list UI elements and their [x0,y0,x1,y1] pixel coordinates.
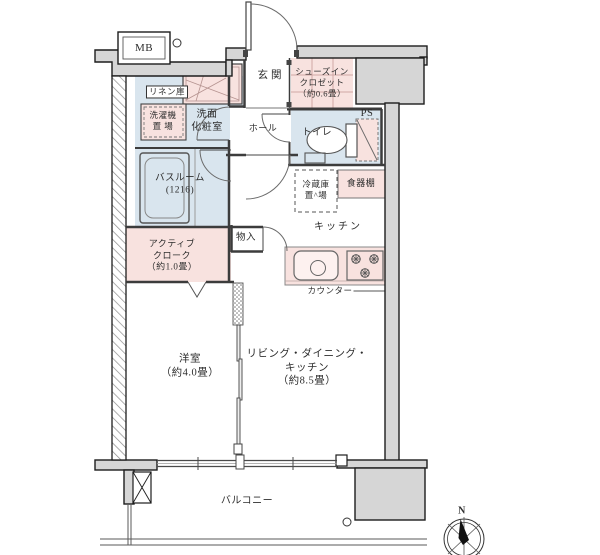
label-washer-space: 洗濯機 置 場 [149,110,176,132]
label-vanity-room: 洗面 化粧室 [191,108,223,134]
label-toilet: トイレ [302,127,332,139]
wall-right-column [385,103,399,461]
label-shoe-closet: シューズイン クロゼット （約0.6畳） [295,66,349,99]
label-bathroom: バスルーム (1216) [155,173,205,198]
wall-left-hatched [112,76,126,460]
door-hinge-mark-closet-bottom [287,102,292,107]
label-linen-closet: リネン庫 [146,85,188,98]
wall-top-right [297,46,427,58]
label-counter: カウンター [306,285,353,296]
label-active-cloak: アクティブ クローク （約1.0畳） [147,238,198,273]
door-hinge-mark-closet-top [287,60,292,65]
door-storage [263,227,287,251]
kitchen-counter [285,247,389,291]
label-pipe-space: PS [361,107,374,121]
floor-plan-page: MB PS 玄関 ホール シューズイン クロゼット （約0.6畳） トイレ リネ… [0,0,600,555]
label-storage: 物入 [236,232,256,244]
front-door [243,2,299,57]
wall-bottom-right-flange [337,460,427,468]
label-balcony: バルコニー [221,495,273,508]
door-hall-ldk [246,155,290,199]
compass-icon [444,517,484,555]
utility-circle-top [173,39,181,47]
utility-circle-balcony [343,518,351,526]
label-ldk: リビング・ダイニング・ キッチン （約8.5畳） [247,348,368,389]
balcony-window-band [157,455,337,470]
pillar-x-box [133,472,151,503]
wall-bottom-left-bar [95,460,157,470]
sliding-partition [233,283,243,454]
wall-bottom-right-block [355,468,425,520]
label-meter-box: MB [135,41,153,55]
label-fridge-space: 冷蔵庫 置^場 [302,179,329,201]
cloak-bifold-door [188,282,206,297]
label-western-room: 洋室 （約4.0畳） [161,352,220,379]
wall-upper-right-block [356,58,424,104]
label-entrance: 玄関 [258,69,285,83]
window-end-cap [336,455,347,466]
label-kitchen: キッチン [314,221,362,234]
wall-entrance-left-post [226,60,232,76]
label-cupboard: 食器棚 [347,178,376,190]
label-hall: ホール [249,123,278,135]
label-compass-north: N [458,505,466,518]
